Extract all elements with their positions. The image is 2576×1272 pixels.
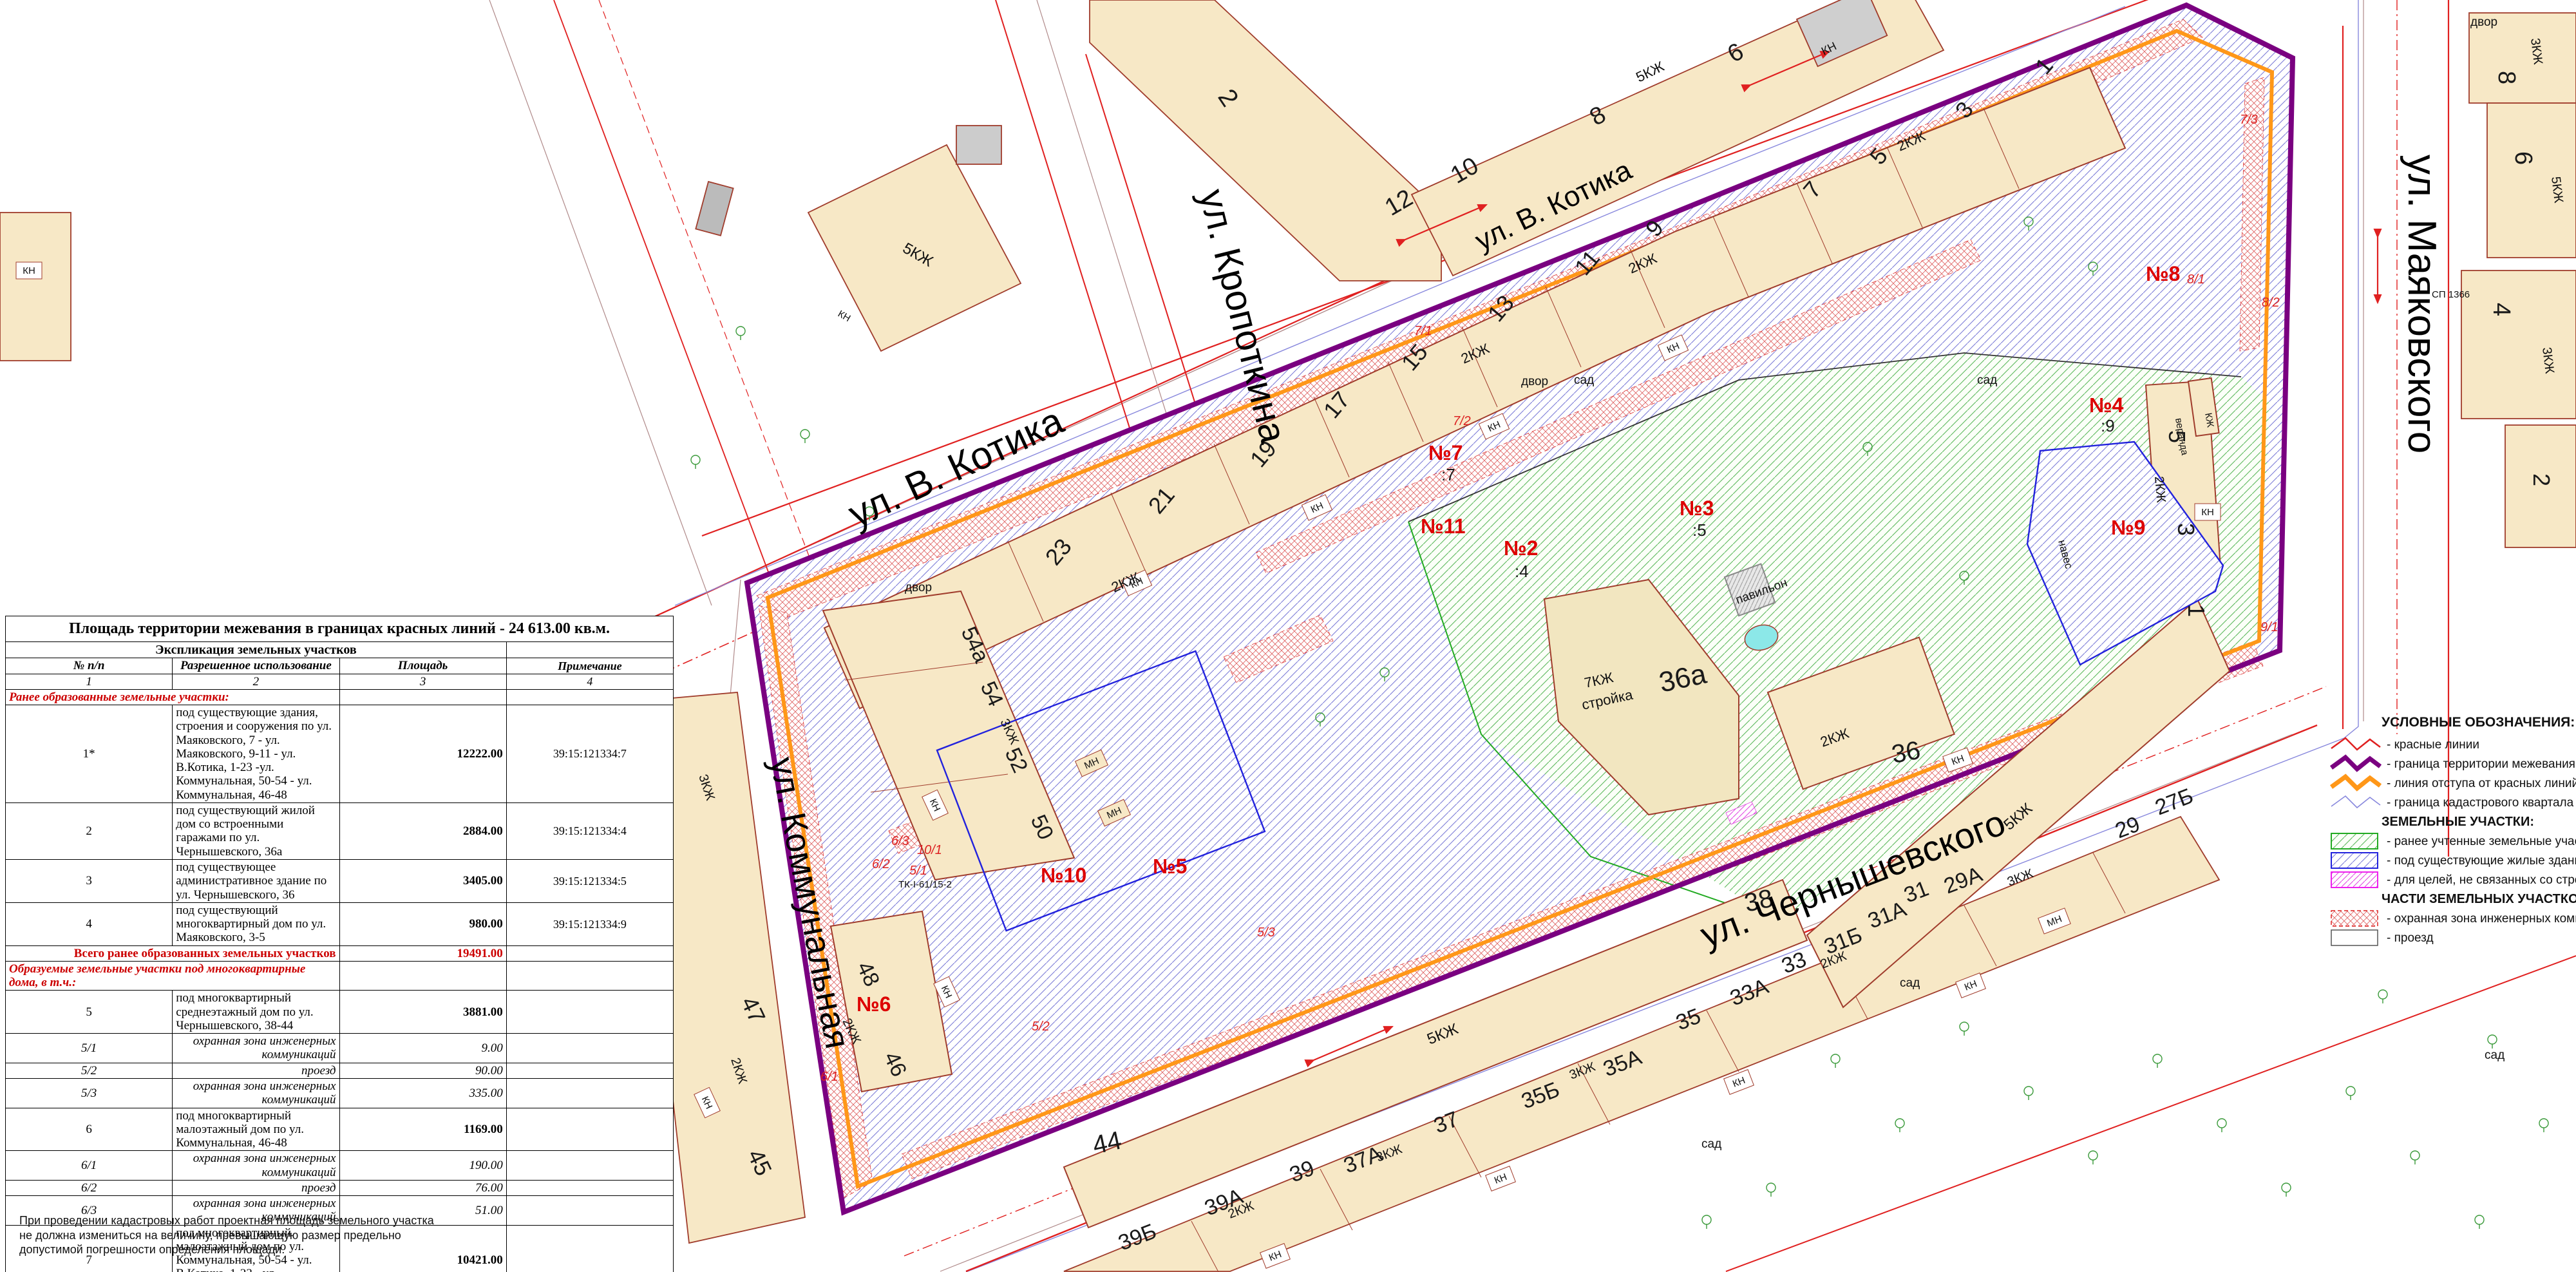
plot-label-9: №9 <box>2111 516 2145 539</box>
legend: УСЛОВНЫЕ ОБОЗНАЧЕНИЯ: - красные линии - … <box>2331 715 2576 945</box>
row-area: 12222.00 <box>339 705 506 803</box>
col-number: 2 <box>173 674 339 689</box>
row-use: проезд <box>173 1180 339 1195</box>
legend-territory-boundary-icon <box>2331 757 2380 769</box>
legend-blue-swatch <box>2331 853 2378 868</box>
plot-label-2: №2 <box>1504 536 1538 560</box>
building-number: 8 <box>2493 71 2520 84</box>
part-label: 5/3 <box>1257 926 1275 940</box>
building-number: 36 <box>1889 736 1922 769</box>
legend-item: - красные линии <box>2387 738 2479 752</box>
legend-item: - ранее учтенные земельные участки <box>2387 835 2576 848</box>
row-area: 3881.00 <box>339 991 506 1034</box>
row-area: 2884.00 <box>339 802 506 859</box>
building-kropotkina-2 <box>1090 0 1441 281</box>
kn-box-label: КН <box>2201 507 2214 518</box>
row-area: 335.00 <box>339 1078 506 1108</box>
legend-item: - граница кадастрового квартала <box>2387 796 2574 810</box>
row-num: 1* <box>6 705 173 803</box>
row-use: под существующие здания, строения и соор… <box>173 705 339 803</box>
row-note: 39:15:121334:4 <box>506 802 673 859</box>
plot-cad-7: :7 <box>1441 465 1455 484</box>
plot-label-8: №8 <box>2146 262 2180 285</box>
part-label: 7/2 <box>1453 414 1471 428</box>
plot-label-5: №5 <box>1153 855 1187 878</box>
sad-label: сад <box>1701 1137 1721 1151</box>
row-note: 39:15:121334:9 <box>506 902 673 945</box>
row-num: 4 <box>6 902 173 945</box>
sad-label: сад <box>1977 374 1997 387</box>
row-num: 6/1 <box>6 1151 173 1181</box>
part-label: 7/3 <box>2240 113 2258 127</box>
part-label: 6/3 <box>891 834 909 848</box>
total-label: Всего ранее образованных земельных участ… <box>6 945 340 961</box>
plot-label-10: №10 <box>1041 864 1086 887</box>
row-num: 2 <box>6 802 173 859</box>
row-num: 3 <box>6 859 173 902</box>
col-header: Разрешенное использование <box>173 658 339 674</box>
building-number: 44 <box>1090 1126 1124 1160</box>
part-label: 10/1 <box>917 843 942 857</box>
plot-label-11: №11 <box>1421 515 1466 538</box>
legend-protection-swatch <box>2331 911 2378 926</box>
building-number: 6 <box>2510 151 2537 165</box>
legend-cadastral-icon <box>2331 796 2380 808</box>
building-number: 1 <box>2183 604 2210 617</box>
legend-item: - линия отступа от красных линий <box>2387 777 2576 790</box>
tk-label: ТК-I-61/15-2 <box>898 879 952 890</box>
row-use: под многоквартирный среднеэтажный дом по… <box>173 991 339 1034</box>
building-type: КН <box>836 309 852 325</box>
sad-label: сад <box>1900 976 1920 990</box>
part-label: 5/2 <box>1032 1020 1050 1034</box>
row-use: под многоквартирный малоэтажный дом по у… <box>173 1108 339 1151</box>
plot-label-7: №7 <box>1428 441 1463 464</box>
row-area: 3405.00 <box>339 859 506 902</box>
row-use: охранная зона инженерных коммуникаций <box>173 1034 339 1063</box>
plot-label-3: №3 <box>1680 497 1714 520</box>
row-area: 980.00 <box>339 902 506 945</box>
row-use: под существующий многоквартирный дом по … <box>173 902 339 945</box>
explication-table: Площадь территории межевания в границах … <box>5 616 674 1272</box>
col-header: № п/п <box>6 658 173 674</box>
sad-label: сад <box>1574 374 1594 387</box>
row-num: 5/3 <box>6 1078 173 1108</box>
row-use: охранная зона инженерных коммуникаций <box>173 1078 339 1108</box>
row-num: 5/2 <box>6 1063 173 1078</box>
row-use: под существующий жилой дом со встроенным… <box>173 802 339 859</box>
note-line: допустимой погрешности определения площа… <box>19 1242 509 1257</box>
legend-magenta-swatch <box>2331 872 2378 888</box>
part-label: 5/1 <box>909 864 927 878</box>
row-area: 76.00 <box>339 1180 506 1195</box>
sad-label: сад <box>2485 1049 2505 1062</box>
part-label: 9/1 <box>2260 620 2278 634</box>
dvor-label: двор <box>905 581 932 594</box>
building-gray-small <box>696 182 733 236</box>
dvor-label: двор <box>1521 375 1548 388</box>
row-use: проезд <box>173 1063 339 1078</box>
table-subtitle: Экспликация земельных участков <box>6 641 507 658</box>
building-number: 3 <box>2173 523 2199 536</box>
row-area: 9.00 <box>339 1034 506 1063</box>
row-num: 5 <box>6 991 173 1034</box>
dvor-label: двор <box>2470 15 2497 29</box>
row-num: 5/1 <box>6 1034 173 1063</box>
legend-item: - граница территории межевания <box>2387 757 2575 771</box>
plot-label-6: №6 <box>857 992 891 1016</box>
street-label-mayakovskogo: ул. Маяковского <box>2400 155 2444 453</box>
building-type: 2КЖ <box>2152 476 2168 504</box>
note-line: При проведении кадастровых работ проектн… <box>19 1213 509 1228</box>
plot-cad-2: :4 <box>1515 562 1529 581</box>
table-title: Площадь территории межевания в границах … <box>6 616 674 642</box>
row-num: 6/2 <box>6 1180 173 1195</box>
row-use: под существующее административное здание… <box>173 859 339 902</box>
row-area: 190.00 <box>339 1151 506 1181</box>
col-number: 4 <box>506 674 673 689</box>
row-use: охранная зона инженерных коммуникаций <box>173 1151 339 1181</box>
legend-passage-swatch <box>2331 930 2378 945</box>
curb-line <box>489 0 712 605</box>
row-num: 6 <box>6 1108 173 1151</box>
plot-label-4: №4 <box>2089 394 2124 417</box>
col-header: Примечание <box>506 658 673 674</box>
building-number: 4 <box>2488 303 2515 316</box>
table-section: Ранее образованные земельные участки: <box>6 689 340 705</box>
part-label: 6/1 <box>820 1070 838 1084</box>
plot-cad-4: :9 <box>2101 416 2115 435</box>
col-header: Площадь <box>339 658 506 674</box>
cadastral-plan-page: КН КН КН КН КН КН КН КН КН КН КН КН КН К… <box>0 0 2576 1272</box>
row-area: 1169.00 <box>339 1108 506 1151</box>
legend-section: ЗЕМЕЛЬНЫЕ УЧАСТКИ: <box>2382 815 2534 829</box>
kn-box-label: КН <box>23 265 35 276</box>
accuracy-note: При проведении кадастровых работ проектн… <box>19 1213 509 1257</box>
legend-green-swatch <box>2331 833 2378 849</box>
red-dash-far-left <box>599 0 818 580</box>
part-label: 8/2 <box>2262 296 2280 310</box>
red-line-far-left <box>554 0 776 593</box>
part-label: 7/1 <box>1414 324 1432 338</box>
building-number: 2 <box>2528 473 2555 486</box>
building-far-left <box>0 213 71 361</box>
part-label: 8/1 <box>2187 272 2205 287</box>
legend-setback-icon <box>2331 777 2380 788</box>
row-note: 39:15:121334:7 <box>506 705 673 803</box>
building-gray-square <box>956 126 1001 164</box>
legend-item: - для целей, не связанных со строительст… <box>2387 873 2576 887</box>
col-number: 1 <box>6 674 173 689</box>
legend-item: - проезд <box>2387 931 2434 945</box>
col-number: 3 <box>339 674 506 689</box>
row-area: 90.00 <box>339 1063 506 1078</box>
table-section: Образуемые земельные участки под многокв… <box>6 961 340 991</box>
legend-item: - под существующие жилые здания <box>2387 854 2576 868</box>
note-line: не должна измениться на величину, превыш… <box>19 1228 509 1243</box>
legend-item: - охранная зона инженерных коммуникаций <box>2387 912 2576 926</box>
legend-title: УСЛОВНЫЕ ОБОЗНАЧЕНИЯ: <box>2382 715 2575 730</box>
building-mayak-4 <box>2461 271 2576 419</box>
row-note: 39:15:121334:5 <box>506 859 673 902</box>
part-label: 6/2 <box>872 857 890 871</box>
plot-cad-3: :5 <box>1692 520 1707 540</box>
total-value: 19491.00 <box>339 945 506 961</box>
legend-section: ЧАСТИ ЗЕМЕЛЬНЫХ УЧАСТКОВ: <box>2382 892 2576 906</box>
